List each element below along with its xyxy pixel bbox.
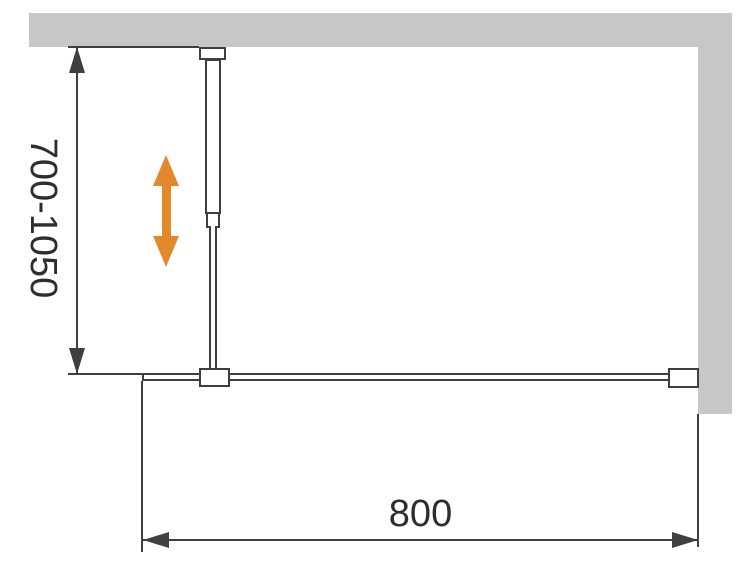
glass-wall-profile (668, 368, 699, 388)
dimension-line-vertical (76, 47, 78, 374)
arrowhead-down-icon (69, 348, 85, 374)
dimension-line-horizontal (143, 539, 698, 541)
dimension-label-horizontal: 800 (143, 495, 698, 533)
wall-top (29, 13, 732, 47)
glass-panel-end-cap (142, 373, 144, 381)
wall-bracket (199, 47, 226, 60)
support-bar-inner-rod (209, 226, 217, 370)
adjust-arrowhead-down (153, 236, 179, 267)
extension-line-top (68, 46, 199, 48)
arrowhead-up-icon (69, 47, 85, 73)
wall-right (698, 47, 732, 414)
support-bar-glass-connector (199, 368, 230, 387)
glass-panel-top-edge (68, 373, 668, 375)
arrowhead-left-icon (143, 532, 169, 548)
adjust-arrow-shaft (162, 184, 170, 238)
diagram-canvas: 700-1050 800 (0, 0, 750, 562)
adjustability-arrow-icon (153, 155, 180, 267)
adjust-arrowhead-up (153, 155, 179, 186)
arrowhead-right-icon (672, 532, 698, 548)
dimension-label-vertical: 700-1050 (24, 133, 62, 303)
support-bar-outer-tube (205, 59, 221, 214)
